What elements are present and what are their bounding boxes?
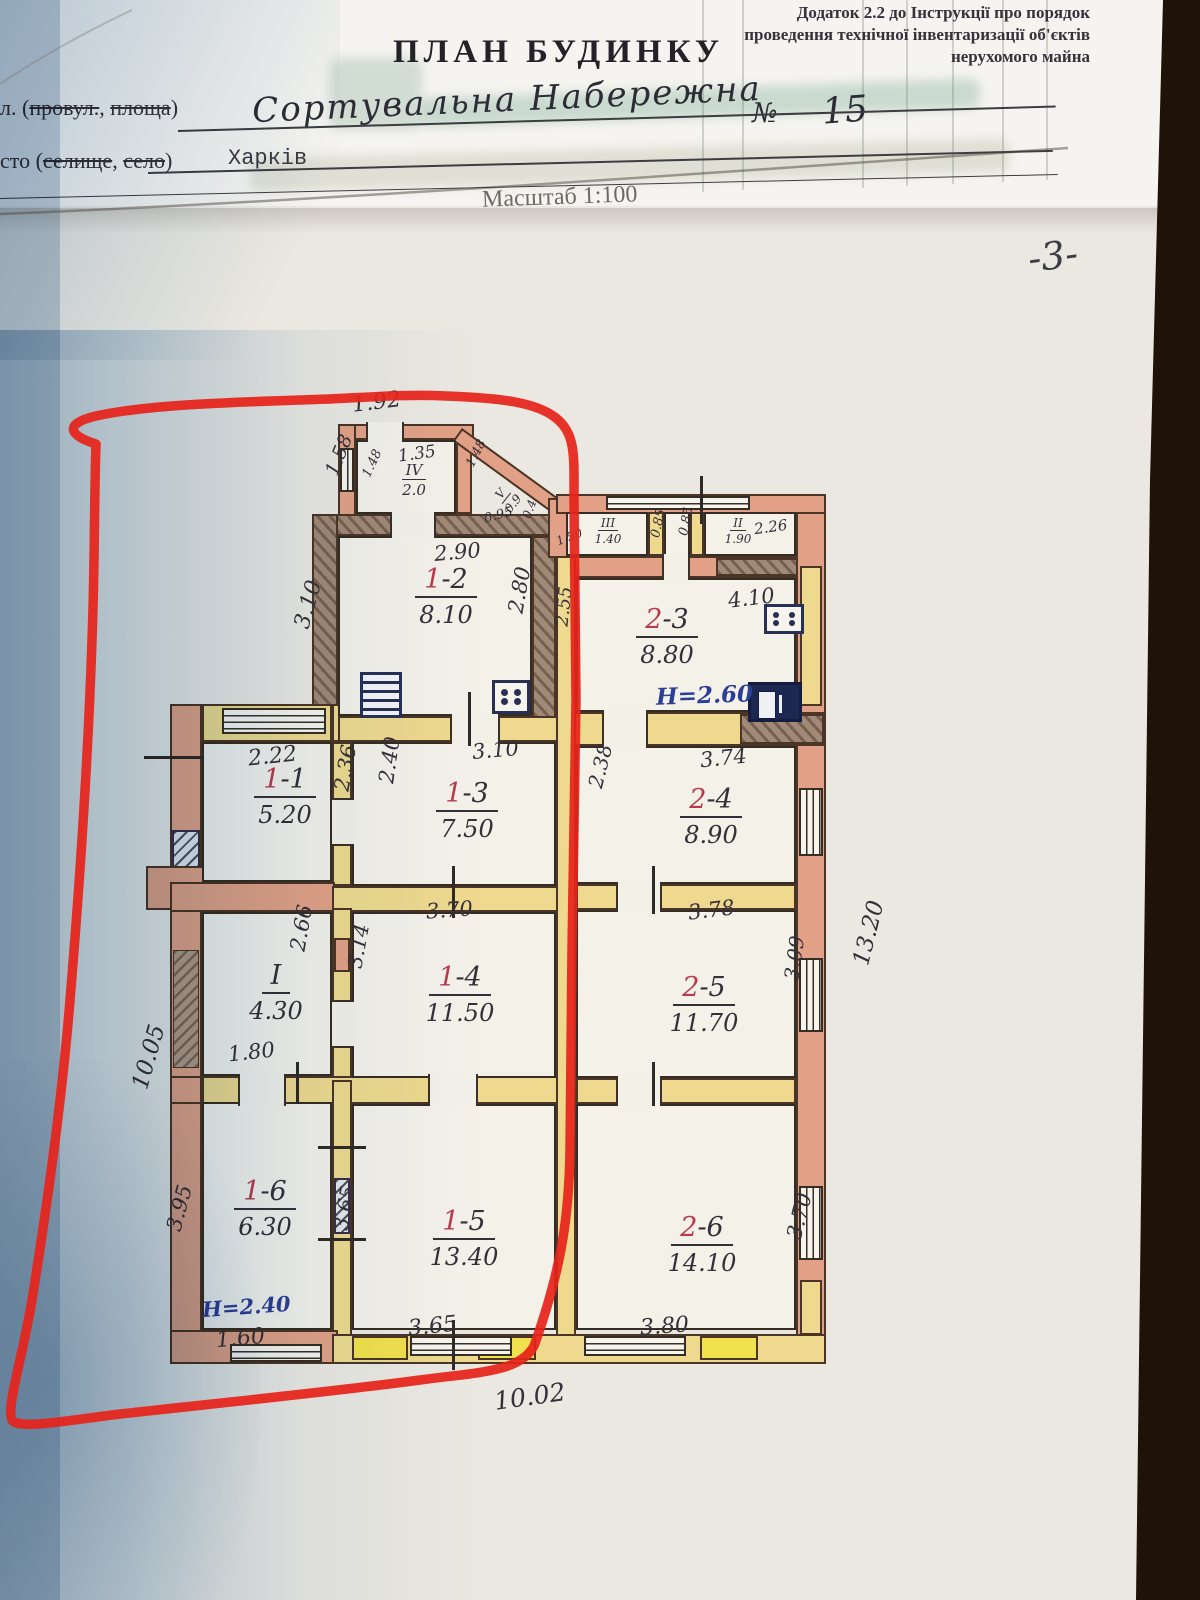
room-label-I: I 4.30 — [226, 962, 326, 1025]
dim-r11-top: 2.22 — [247, 742, 298, 772]
door-opening — [332, 1000, 354, 1048]
door-opening — [238, 1074, 286, 1106]
dimension-tick — [318, 1146, 366, 1149]
dim-r24-top: 3.74 — [699, 744, 748, 773]
dimension-tick — [652, 866, 655, 914]
dim-left-total: 10.05 — [127, 1022, 170, 1092]
door-opening — [616, 882, 662, 912]
room-label-2-6: 2-6 14.10 — [642, 1214, 762, 1277]
wall — [800, 566, 822, 706]
dim-ri-bottom: 1.80 — [227, 1038, 276, 1067]
radiator-icon — [360, 672, 402, 718]
room-label-1-2: 1-2 8.10 — [396, 566, 496, 629]
dim-right-total: 13.20 — [848, 898, 889, 968]
dim-r23-left: 2.55 — [552, 585, 577, 627]
room-label-1-1: 1-1 5.20 — [230, 766, 340, 829]
dimension-tick — [468, 692, 471, 746]
door-opening — [602, 710, 648, 748]
dim-porch-top: 1.92 — [351, 387, 403, 418]
wall — [800, 1280, 822, 1335]
dim-r26-bottom: 3.80 — [639, 1312, 690, 1340]
room-label-III: III 1.40 — [580, 514, 636, 546]
room-label-2-5: 2-5 11.70 — [644, 974, 764, 1037]
door-opening — [428, 1074, 478, 1106]
room-label-1-6: 1-6 6.30 — [210, 1178, 320, 1241]
wall — [532, 536, 556, 718]
room-label-2-4: 2-4 8.90 — [656, 786, 766, 849]
wall — [170, 1076, 202, 1104]
dim-r13-top: 3.10 — [471, 736, 520, 764]
door-opening — [366, 422, 404, 442]
dimension-tick — [652, 1062, 655, 1106]
window — [606, 496, 750, 510]
door-opening — [662, 554, 690, 580]
wall — [576, 1078, 796, 1104]
room-label-1-3: 1-3 7.50 — [412, 780, 522, 843]
dimension-tick — [296, 1062, 299, 1104]
floor-plan: IV 2.0 V 0.9 III 1.40 II 1.90 1-2 8.10 2… — [0, 0, 1200, 1600]
gas-stove-icon — [764, 604, 804, 634]
window — [584, 1336, 686, 1356]
room-label-1-5: 1-5 13.40 — [404, 1208, 524, 1271]
room-label-1-4: 1-4 11.50 — [400, 964, 520, 1027]
dimension-tick — [700, 476, 703, 524]
window — [222, 708, 326, 734]
dim-bottom-total: 10.02 — [492, 1377, 567, 1416]
wall-hatched — [173, 950, 199, 1068]
window — [799, 788, 823, 856]
room-label-IV: IV 2.0 — [386, 462, 442, 499]
door-opening — [616, 1076, 662, 1106]
dimension-tick — [318, 1238, 366, 1241]
dimension-tick — [144, 756, 204, 759]
wall — [576, 884, 796, 910]
paper-sheet: Додаток 2.2 до Інструкції про порядок пр… — [0, 0, 1200, 1600]
wall — [338, 716, 558, 742]
room-label-2-3: 2-3 8.80 — [612, 606, 722, 669]
ceiling-height-note: Н=2.60 — [656, 680, 754, 710]
door-opening — [390, 512, 436, 538]
wall — [700, 1336, 758, 1360]
dim-r12-top: 2.90 — [433, 538, 482, 566]
dim-r14-top: 3.70 — [425, 896, 473, 923]
gas-stove-icon — [492, 680, 530, 714]
boiler-icon — [748, 682, 802, 722]
dim-r15-bottom: 3.65 — [407, 1312, 458, 1342]
wall — [352, 1336, 408, 1360]
wall — [556, 556, 576, 1348]
dim-r16-bottom: 1.60 — [215, 1324, 266, 1353]
scanned-document-photo: Додаток 2.2 до Інструкції про порядок пр… — [0, 0, 1200, 1600]
